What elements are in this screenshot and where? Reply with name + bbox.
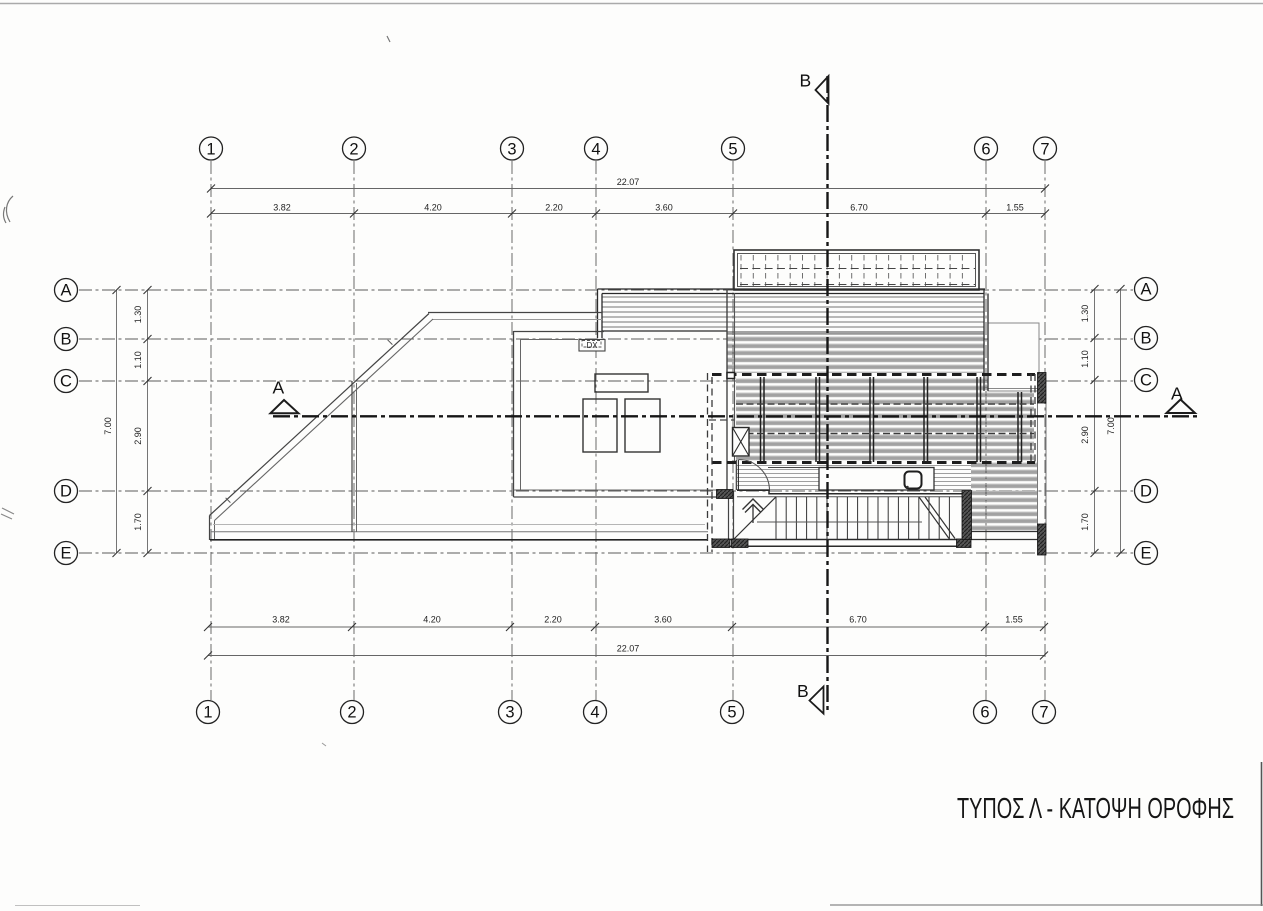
svg-text:D: D [60,483,72,501]
svg-text:2.20: 2.20 [545,203,563,213]
svg-text:2.90: 2.90 [1080,426,1090,444]
svg-text:E: E [60,545,71,563]
svg-text:D: D [1140,483,1152,501]
svg-text:B: B [797,681,809,701]
svg-text:7: 7 [1039,704,1048,722]
svg-text:DX: DX [586,341,598,350]
svg-text:1: 1 [203,704,212,722]
svg-text:3.82: 3.82 [273,203,291,213]
svg-text:1.55: 1.55 [1005,615,1023,625]
svg-text:4: 4 [590,704,599,722]
svg-text:ΤΥΠΟΣ Λ - ΚΑΤΟΨΗ ΟΡΟΦΗΣ: ΤΥΠΟΣ Λ - ΚΑΤΟΨΗ ΟΡΟΦΗΣ [957,793,1234,825]
svg-text:7: 7 [1040,141,1049,159]
svg-text:6: 6 [980,704,989,722]
svg-text:E: E [1140,545,1151,563]
svg-text:4: 4 [591,141,600,159]
svg-text:B: B [1140,330,1151,348]
svg-text:A: A [60,282,71,300]
svg-text:B: B [60,331,71,349]
svg-text:A: A [1140,281,1151,299]
svg-text:4.20: 4.20 [423,615,441,625]
svg-text:1.55: 1.55 [1006,203,1024,213]
svg-text:6.70: 6.70 [849,615,867,625]
svg-text:2.20: 2.20 [544,615,562,625]
svg-text:C: C [1140,372,1152,390]
svg-text:22.07: 22.07 [617,644,640,654]
svg-text:3.82: 3.82 [272,615,290,625]
svg-text:C: C [60,373,72,391]
svg-text:7.00: 7.00 [103,417,113,435]
svg-text:1.70: 1.70 [1080,513,1090,531]
svg-text:7.00: 7.00 [1106,417,1116,435]
svg-text:6.70: 6.70 [850,203,868,213]
svg-text:1: 1 [206,141,215,159]
svg-text:3: 3 [505,704,514,722]
svg-text:2.90: 2.90 [133,427,143,445]
svg-text:3.60: 3.60 [655,203,673,213]
svg-text:B: B [800,71,812,91]
svg-text:1.10: 1.10 [1080,350,1090,368]
svg-text:1.70: 1.70 [133,513,143,531]
svg-text:22.07: 22.07 [617,177,640,187]
svg-text:5: 5 [728,141,737,159]
svg-text:1.10: 1.10 [133,351,143,369]
svg-text:4.20: 4.20 [424,203,442,213]
svg-text:1.30: 1.30 [133,306,143,324]
svg-text:5: 5 [727,704,736,722]
svg-text:A: A [273,378,285,398]
svg-text:1.30: 1.30 [1080,305,1090,323]
svg-text:3.60: 3.60 [654,615,672,625]
svg-text:2: 2 [349,141,358,159]
svg-text:6: 6 [981,141,990,159]
svg-text:3: 3 [507,141,516,159]
svg-text:2: 2 [347,704,356,722]
